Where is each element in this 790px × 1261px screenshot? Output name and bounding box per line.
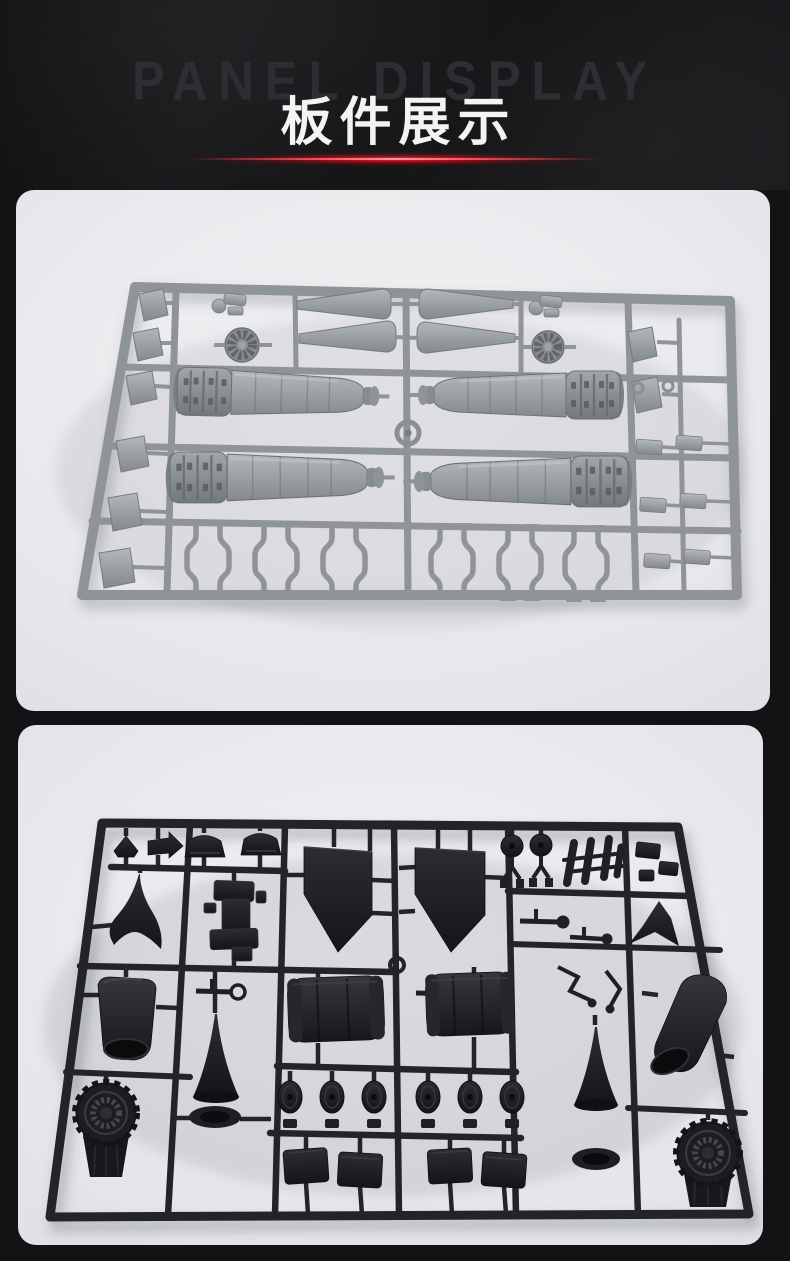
photo-gray-sprue: Light grey injection-molded sprue with f…: [16, 190, 770, 711]
actuator-strips: [564, 839, 624, 883]
red-glow-divider: [115, 147, 675, 171]
delta-part: [114, 836, 138, 857]
table-shadow: [56, 314, 746, 630]
turbine-wheel-left: [75, 1082, 137, 1177]
small-blocks-right: [635, 842, 678, 881]
intake-duct-left: [98, 977, 156, 1060]
turbine-wheel-right: [676, 1121, 740, 1207]
section-header: PANEL DISPLAY 板件展示: [0, 0, 790, 190]
photo-black-caption: Black injection-molded sprue with two wi…: [18, 725, 19, 726]
section-title: 板件展示: [0, 80, 790, 155]
black-sprue-illustration: [18, 725, 763, 1245]
product-detail-section: PANEL DISPLAY 板件展示 Light grey injection-…: [0, 0, 790, 1261]
gray-sprue-illustration: [16, 190, 770, 711]
photo-gray-caption: Light grey injection-molded sprue with f…: [16, 190, 17, 191]
photo-black-sprue: Black injection-molded sprue with two wi…: [18, 725, 763, 1245]
